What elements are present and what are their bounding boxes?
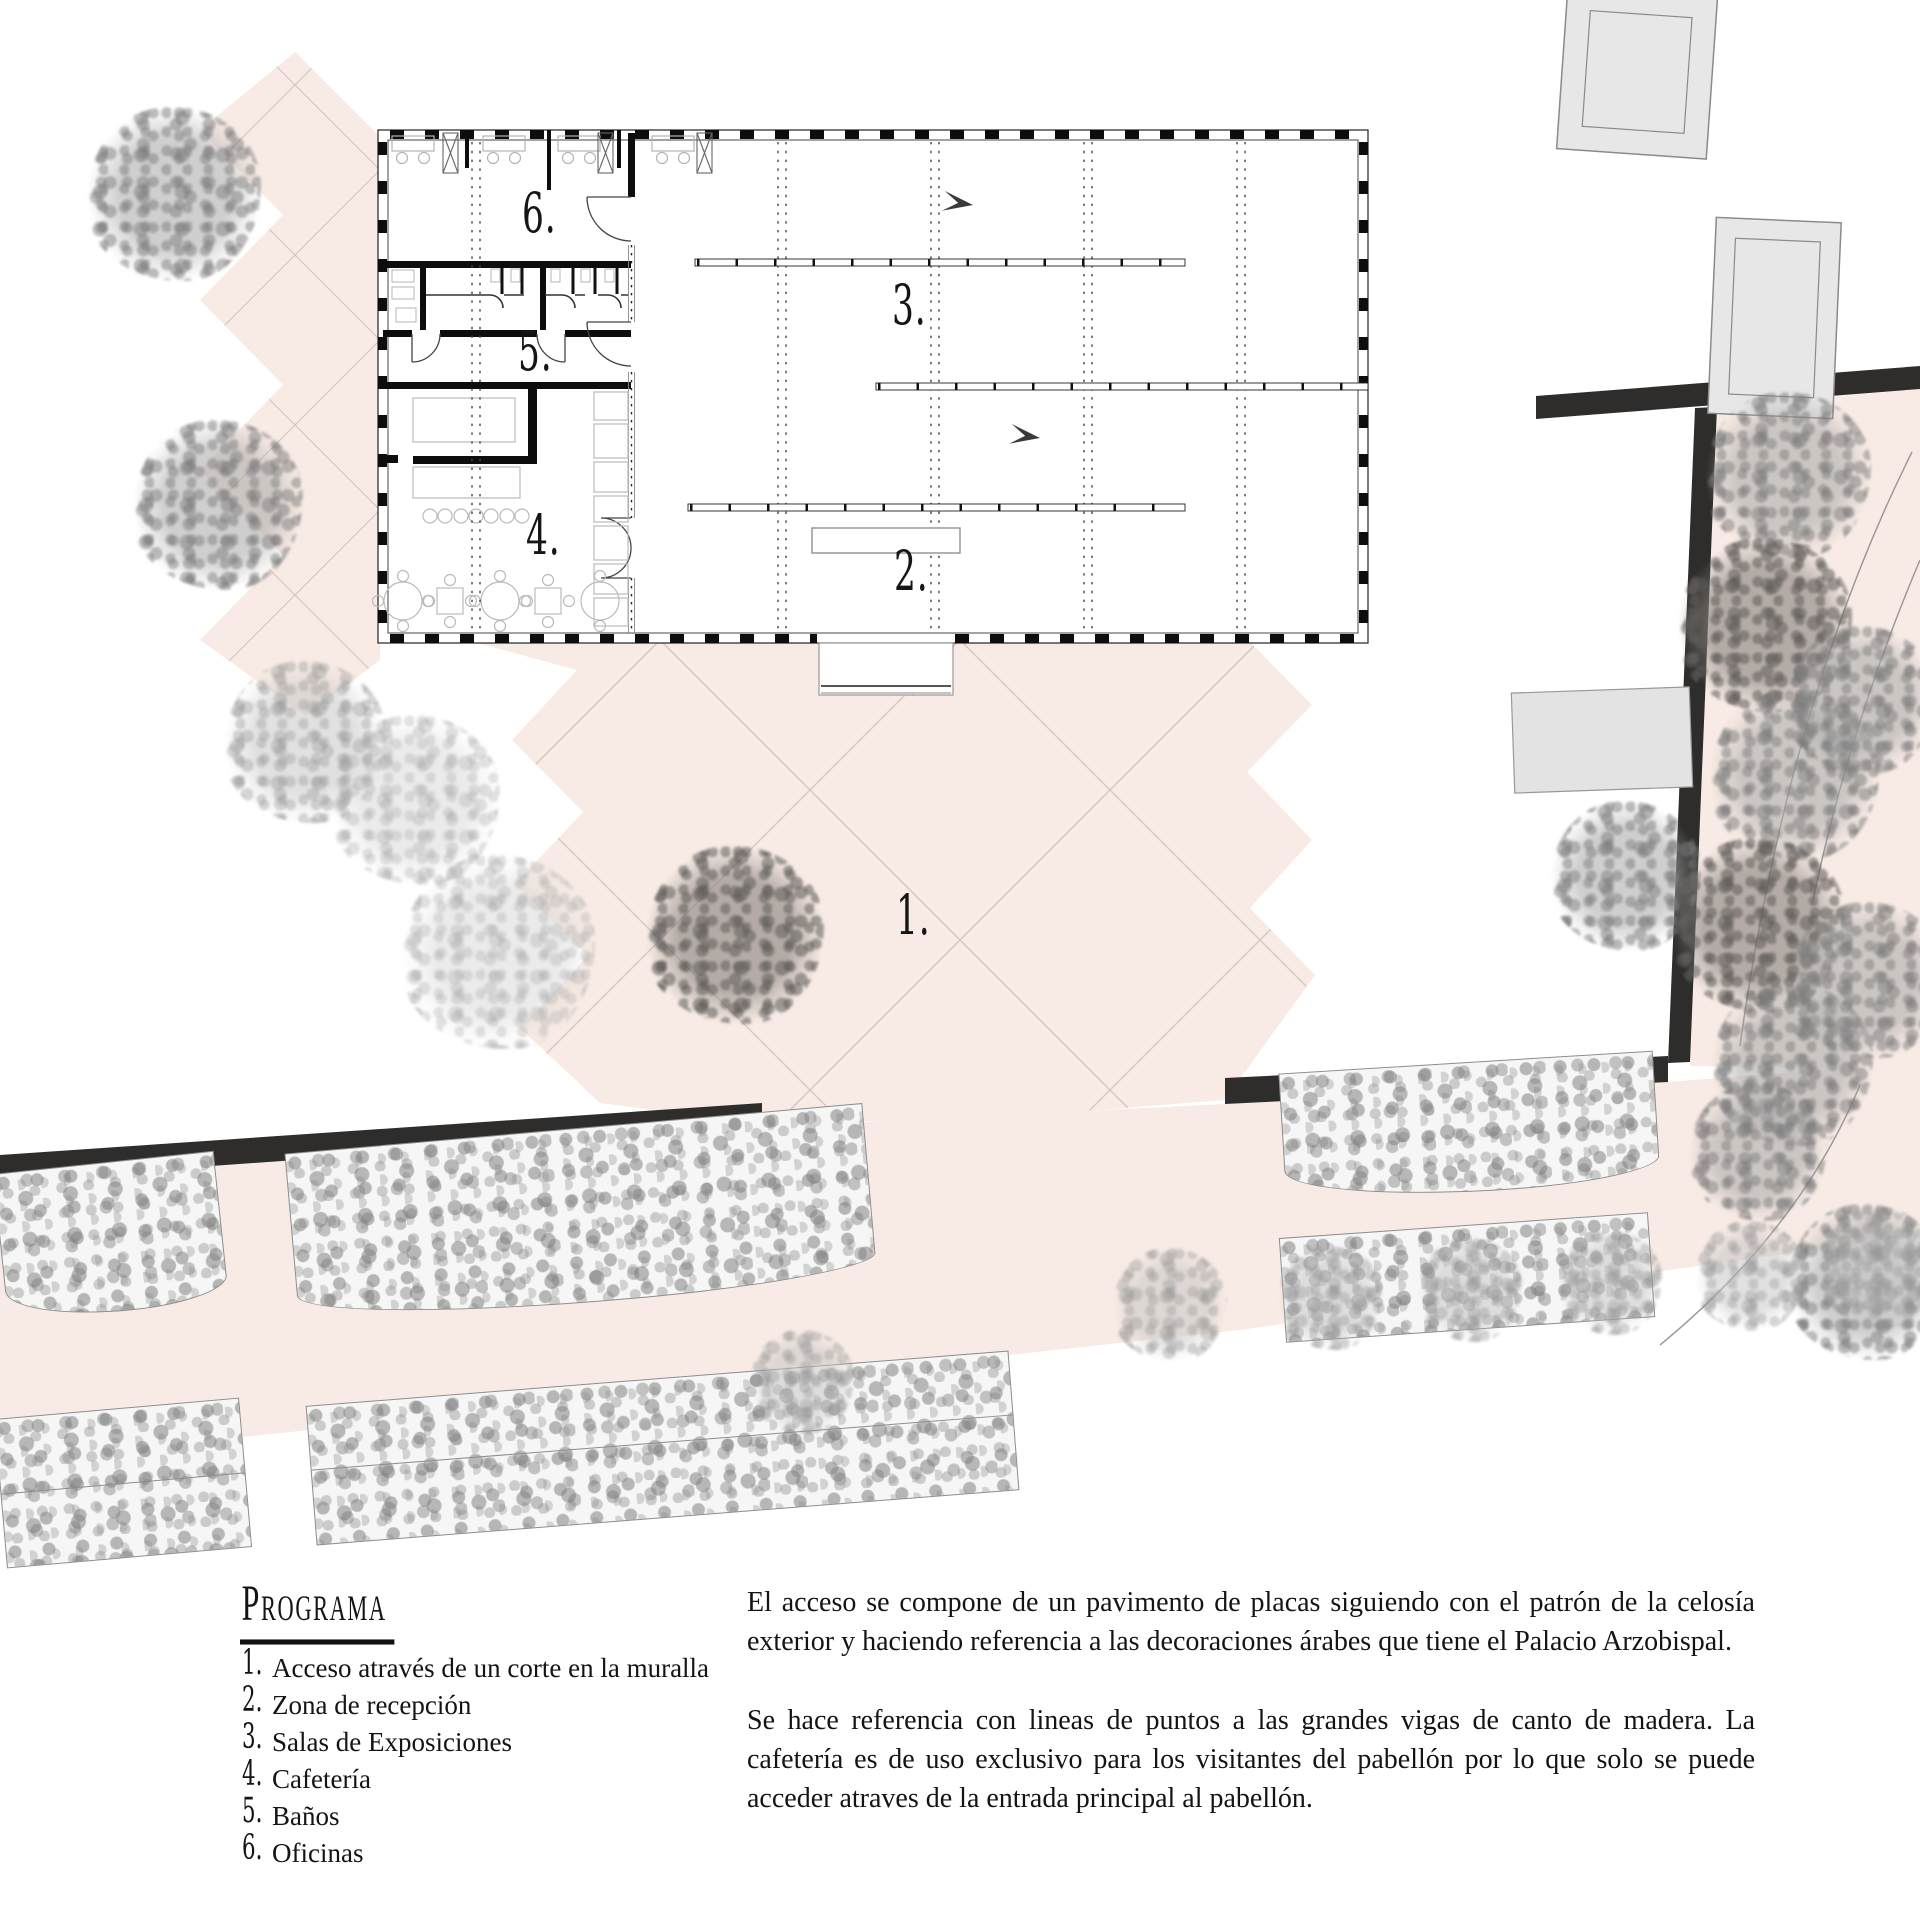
programa-item-text: Salas de Exposiciones <box>272 1727 512 1757</box>
programa-item: 5.Baños <box>242 1798 740 1835</box>
plan-label-cafeteria: 4. <box>526 518 568 568</box>
programa-item-text: Cafetería <box>272 1764 371 1794</box>
plan-label-oficinas: 6. <box>522 196 564 246</box>
plan-label-reception: 2. <box>894 554 936 604</box>
programa-item-text: Zona de recepción <box>272 1690 471 1720</box>
plan-label-exhibition: 3. <box>892 288 934 338</box>
description-paragraph-access: El acceso se compone de un pavimento de … <box>747 1583 1755 1661</box>
programa-legend: Programa 1.Acceso através de un corte en… <box>240 1578 740 1872</box>
entrance-vestibule <box>819 643 953 695</box>
programa-item: 6.Oficinas <box>242 1835 740 1872</box>
programa-item-text: Baños <box>272 1801 340 1831</box>
programa-item-text: Acceso através de un corte en la muralla <box>272 1653 709 1683</box>
programa-item-text: Oficinas <box>272 1838 363 1868</box>
programa-item: 2.Zona de recepción <box>242 1687 740 1724</box>
description-paragraph-beams: Se hace referencia con lineas de puntos … <box>747 1701 1755 1818</box>
programa-item: 3.Salas de Exposiciones <box>242 1724 740 1761</box>
architectural-site-plan-board: 1. 2. 3. 4. 5. 6. Programa 1.Acceso atra… <box>0 0 1920 1920</box>
programa-item: 4.Cafetería <box>242 1761 740 1798</box>
plan-label-access: 1. <box>896 898 938 948</box>
plan-label-banos: 5. <box>518 334 560 384</box>
programa-title: Programa <box>240 1578 395 1645</box>
description-text: El acceso se compone de un pavimento de … <box>747 1583 1755 1818</box>
reception-desk <box>812 528 960 553</box>
programa-item: 1.Acceso através de un corte en la mural… <box>242 1650 740 1687</box>
programa-list: 1.Acceso através de un corte en la mural… <box>242 1650 740 1872</box>
